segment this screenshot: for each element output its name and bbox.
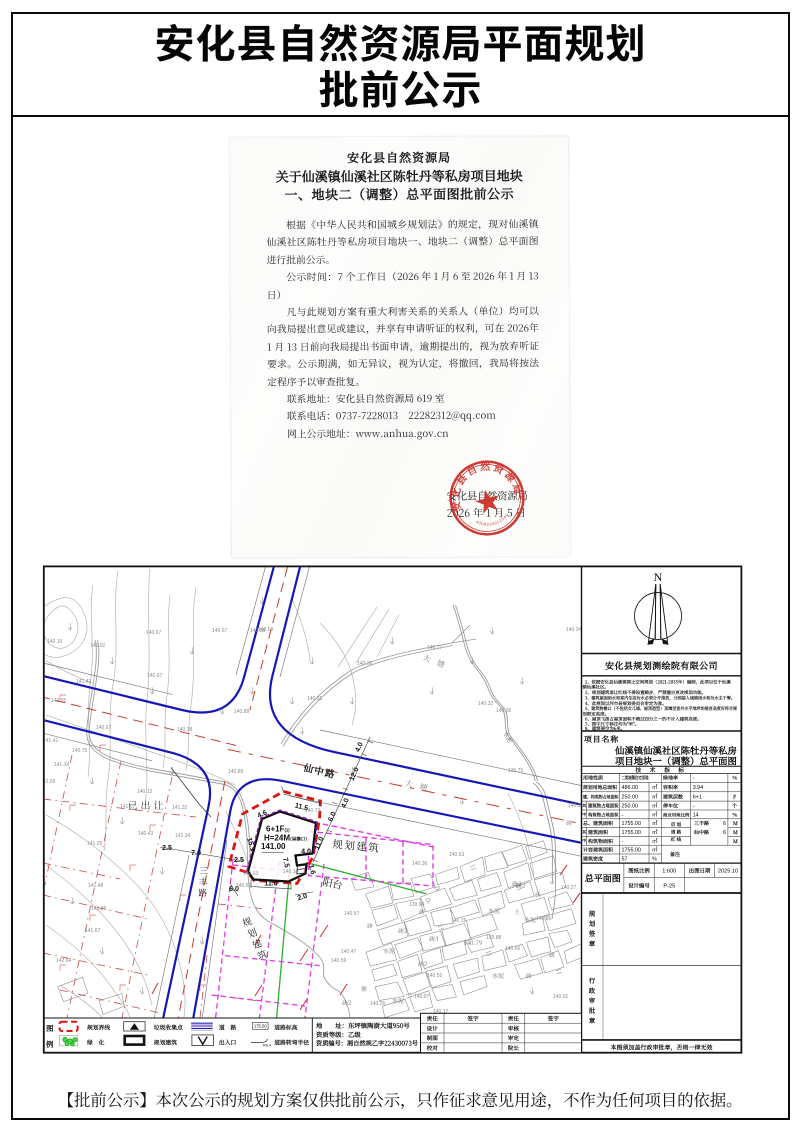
svg-text:141.41: 141.41 bbox=[43, 738, 59, 744]
svg-text:%: % bbox=[733, 775, 738, 782]
svg-text:绿地率: 绿地率 bbox=[662, 775, 678, 782]
svg-text:砖2: 砖2 bbox=[342, 998, 352, 1007]
svg-text:141.32: 141.32 bbox=[172, 805, 188, 811]
svg-text:P-25: P-25 bbox=[663, 883, 675, 889]
svg-text:构筑物面积: 构筑物面积 bbox=[587, 838, 614, 845]
svg-text:划: 划 bbox=[588, 919, 596, 928]
svg-text:-: - bbox=[622, 839, 624, 845]
svg-text:责任: 责任 bbox=[508, 1015, 520, 1023]
svg-text:1.6: 1.6 bbox=[307, 864, 317, 876]
svg-text:140.63: 140.63 bbox=[449, 852, 465, 858]
svg-text:砖: 砖 bbox=[566, 818, 572, 827]
svg-text:审: 审 bbox=[589, 996, 596, 1005]
svg-text:140.73: 140.73 bbox=[305, 808, 321, 814]
svg-text:砖: 砖 bbox=[535, 890, 541, 899]
svg-text:140.77: 140.77 bbox=[427, 645, 443, 651]
svg-text:规: 规 bbox=[588, 909, 596, 918]
svg-text:1:600: 1:600 bbox=[662, 868, 676, 874]
svg-text:140.57: 140.57 bbox=[344, 911, 360, 917]
svg-text:商业用地比例: 商业用地比例 bbox=[663, 812, 690, 818]
svg-text:责任: 责任 bbox=[427, 1015, 439, 1023]
svg-text:建筑层数: 建筑层数 bbox=[663, 793, 683, 800]
svg-text:批: 批 bbox=[588, 1006, 596, 1015]
svg-text:140.19: 140.19 bbox=[451, 918, 467, 924]
svg-text:140.36: 140.36 bbox=[357, 661, 373, 667]
svg-text:仙中路: 仙中路 bbox=[301, 760, 337, 782]
svg-text:建筑物占地面积: 建筑物占地面积 bbox=[588, 802, 619, 809]
svg-text:出图日期: 出图日期 bbox=[689, 866, 711, 874]
svg-text:安化县规划测绘院有限公司: 安化县规划测绘院有限公司 bbox=[605, 659, 718, 672]
svg-text:砖2: 砖2 bbox=[512, 879, 522, 888]
svg-text:486.00: 486.00 bbox=[622, 785, 639, 791]
svg-text:后 退: 后 退 bbox=[671, 822, 682, 828]
svg-text:砖3: 砖3 bbox=[429, 934, 438, 943]
svg-text:砖: 砖 bbox=[367, 921, 373, 930]
svg-text:资质编号：湘自然规乙字22430073号: 资质编号：湘自然规乙字22430073号 bbox=[316, 1039, 419, 1048]
svg-text:141.29: 141.29 bbox=[87, 841, 103, 847]
svg-text:6+1: 6+1 bbox=[693, 794, 702, 800]
svg-text:140.26: 140.26 bbox=[370, 1001, 386, 1007]
svg-text:红 线: 红 线 bbox=[671, 837, 682, 843]
svg-text:141.86: 141.86 bbox=[91, 906, 107, 912]
svg-text:本图须加盖行政审批章，否则一律无效: 本图须加盖行政审批章，否则一律无效 bbox=[610, 1043, 712, 1052]
svg-text:审定: 审定 bbox=[508, 1034, 520, 1042]
svg-text:141.07: 141.07 bbox=[120, 804, 136, 810]
svg-text:三丰路: 三丰路 bbox=[694, 820, 709, 827]
svg-text:140.10: 140.10 bbox=[283, 869, 299, 875]
svg-text:140.59: 140.59 bbox=[331, 958, 347, 964]
svg-text:1755.00: 1755.00 bbox=[622, 821, 642, 827]
svg-text:地 址：东坪镇陶澍大道950号: 地 址：东坪镇陶澍大道950号 bbox=[316, 1021, 410, 1030]
svg-text:绿 化: 绿 化 bbox=[86, 1037, 105, 1046]
svg-text:出入口: 出入口 bbox=[219, 1037, 237, 1046]
svg-text:阳台: 阳台 bbox=[321, 873, 344, 892]
svg-text:停车位: 停车位 bbox=[663, 802, 678, 809]
svg-text:6.0: 6.0 bbox=[326, 810, 337, 822]
svg-text:水泥: 水泥 bbox=[492, 971, 504, 980]
svg-text:建筑密度: 建筑密度 bbox=[583, 856, 603, 863]
svg-text:140.36: 140.36 bbox=[496, 708, 512, 714]
svg-text:3.94: 3.94 bbox=[693, 785, 704, 791]
svg-text:57: 57 bbox=[622, 857, 628, 863]
svg-text:140.16: 140.16 bbox=[47, 639, 63, 645]
svg-text:㎡: ㎡ bbox=[652, 846, 658, 854]
svg-text:㎡: ㎡ bbox=[652, 801, 658, 809]
svg-text:规划建筑: 规划建筑 bbox=[332, 837, 381, 856]
svg-text:容积率: 容积率 bbox=[663, 784, 678, 791]
svg-text:140.61: 140.61 bbox=[553, 994, 569, 1000]
svg-text:行: 行 bbox=[588, 976, 596, 985]
svg-text:7.0: 7.0 bbox=[191, 849, 201, 857]
svg-text:140.62: 140.62 bbox=[236, 883, 252, 889]
svg-text:140.43: 140.43 bbox=[138, 831, 154, 837]
svg-text:-: - bbox=[693, 775, 695, 782]
svg-text:2025.10: 2025.10 bbox=[718, 868, 738, 874]
svg-text:㎡: ㎡ bbox=[652, 792, 658, 800]
svg-text:设计编号: 设计编号 bbox=[628, 881, 650, 889]
svg-text:140.32: 140.32 bbox=[478, 701, 494, 707]
svg-text:签字: 签字 bbox=[466, 1015, 479, 1023]
svg-text:总平面图: 总平面图 bbox=[585, 872, 621, 885]
svg-text:图: 图 bbox=[46, 1023, 54, 1034]
svg-text:二类城镇住宅用地: 二类城镇住宅用地 bbox=[622, 775, 649, 782]
svg-text:㎡: ㎡ bbox=[652, 810, 658, 818]
svg-text:例: 例 bbox=[46, 1039, 54, 1050]
svg-text:141.67: 141.67 bbox=[85, 928, 101, 934]
svg-text:资质等级：乙级: 资质等级：乙级 bbox=[316, 1030, 361, 1039]
svg-text:院长: 院长 bbox=[508, 1044, 520, 1052]
svg-text:135.75: 135.75 bbox=[508, 768, 524, 774]
svg-text:道路转弯半径: 道路转弯半径 bbox=[274, 1037, 309, 1046]
svg-text:签字: 签字 bbox=[547, 1015, 560, 1023]
svg-text:技 术 指 标: 技 术 指 标 bbox=[634, 765, 687, 774]
svg-text:M: M bbox=[733, 820, 738, 827]
svg-text:14: 14 bbox=[693, 812, 699, 818]
svg-text:-: - bbox=[693, 802, 695, 809]
svg-text:M: M bbox=[733, 829, 738, 836]
svg-text:审核: 审核 bbox=[508, 1024, 520, 1032]
svg-text:6: 6 bbox=[723, 830, 726, 836]
svg-text:总、建筑面积: 总、建筑面积 bbox=[583, 820, 614, 827]
svg-text:12.0: 12.0 bbox=[348, 766, 361, 782]
svg-text:1755.00: 1755.00 bbox=[622, 848, 642, 854]
svg-text:仙中路: 仙中路 bbox=[693, 829, 709, 836]
svg-text:4.0: 4.0 bbox=[339, 797, 350, 809]
svg-text:140.12: 140.12 bbox=[137, 789, 153, 795]
svg-text:142.03: 142.03 bbox=[40, 779, 56, 785]
svg-text:140.67: 140.67 bbox=[212, 628, 228, 634]
svg-text:砖: 砖 bbox=[549, 950, 555, 959]
svg-text:141.34: 141.34 bbox=[175, 833, 191, 839]
svg-text:140.89: 140.89 bbox=[234, 709, 250, 715]
svg-text:道 路: 道 路 bbox=[219, 1022, 237, 1031]
svg-text:㎡: ㎡ bbox=[652, 819, 658, 827]
svg-text:140.63: 140.63 bbox=[243, 871, 259, 877]
svg-text:空: 空 bbox=[425, 896, 431, 905]
svg-text:140.31: 140.31 bbox=[307, 696, 323, 702]
svg-text:-: - bbox=[622, 812, 624, 818]
svg-text:项目名称: 项目名称 bbox=[584, 734, 619, 745]
svg-text:M: M bbox=[733, 838, 738, 845]
svg-text:水泥: 水泥 bbox=[392, 996, 404, 1005]
svg-text:2.5: 2.5 bbox=[234, 856, 244, 864]
svg-text:%: % bbox=[652, 857, 657, 863]
svg-text:建筑面积: 建筑面积 bbox=[588, 829, 609, 836]
svg-text:计容建筑面积: 计容建筑面积 bbox=[583, 847, 614, 854]
svg-text:章: 章 bbox=[589, 939, 596, 948]
svg-text:规划建筑: 规划建筑 bbox=[153, 1037, 177, 1046]
svg-text:中: 中 bbox=[582, 812, 586, 818]
svg-text:设计: 设计 bbox=[427, 1024, 439, 1032]
svg-text:规划界线: 规划界线 bbox=[86, 1022, 110, 1031]
svg-text:政: 政 bbox=[588, 986, 596, 995]
svg-text:140.86: 140.86 bbox=[536, 916, 552, 922]
svg-text:140.89: 140.89 bbox=[228, 769, 244, 775]
svg-text:140.47: 140.47 bbox=[341, 949, 357, 955]
svg-text:139.88: 139.88 bbox=[486, 935, 502, 941]
svg-text:备注: 备注 bbox=[670, 851, 680, 858]
svg-text:141.43: 141.43 bbox=[76, 679, 92, 685]
svg-text:140.67: 140.67 bbox=[147, 673, 163, 679]
svg-text:141.00: 141.00 bbox=[261, 842, 286, 851]
svg-text:制图: 制图 bbox=[427, 1034, 439, 1042]
svg-text:规划用地总面积: 规划用地总面积 bbox=[582, 784, 618, 791]
svg-text:140.53: 140.53 bbox=[258, 627, 274, 633]
svg-text:%: % bbox=[733, 811, 738, 818]
svg-text:140.75: 140.75 bbox=[72, 748, 88, 754]
svg-text:砖: 砖 bbox=[419, 907, 425, 916]
svg-text:1755.00: 1755.00 bbox=[622, 830, 642, 836]
svg-text:F: F bbox=[733, 793, 737, 800]
svg-text:㎡: ㎡ bbox=[652, 783, 658, 791]
svg-text:签: 签 bbox=[588, 929, 596, 938]
svg-text:140.55: 140.55 bbox=[427, 973, 443, 979]
svg-text:6: 6 bbox=[723, 821, 726, 827]
svg-text:图纸比例: 图纸比例 bbox=[628, 866, 650, 874]
svg-text:N: N bbox=[654, 570, 663, 584]
svg-text:㎡: ㎡ bbox=[652, 837, 658, 845]
svg-text:砖2: 砖2 bbox=[398, 926, 408, 935]
svg-text:校对: 校对 bbox=[426, 1044, 439, 1052]
svg-text:8、建筑架空为6米。: 8、建筑架空为6米。 bbox=[585, 726, 625, 732]
svg-text:空: 空 bbox=[434, 884, 440, 893]
svg-text:250.00: 250.00 bbox=[622, 803, 639, 809]
svg-text:141.34: 141.34 bbox=[54, 762, 70, 768]
svg-text:水泥: 水泥 bbox=[488, 906, 500, 915]
svg-text:水泥: 水泥 bbox=[383, 946, 395, 955]
svg-text:大塘: 大塘 bbox=[404, 778, 436, 795]
svg-text:140.97: 140.97 bbox=[414, 994, 430, 1000]
svg-text:道 路: 道 路 bbox=[671, 829, 682, 835]
svg-text:140.36: 140.36 bbox=[412, 861, 428, 867]
svg-text:2.5: 2.5 bbox=[162, 844, 172, 852]
svg-text:用地性质: 用地性质 bbox=[583, 775, 603, 782]
svg-text:140.38: 140.38 bbox=[177, 727, 193, 733]
svg-text:140.79: 140.79 bbox=[464, 938, 483, 947]
svg-text:141.48: 141.48 bbox=[88, 883, 104, 889]
svg-text:大塘: 大塘 bbox=[421, 652, 453, 673]
svg-text:构筑物占地面积: 构筑物占地面积 bbox=[587, 811, 619, 818]
svg-text:土: 土 bbox=[514, 907, 520, 916]
svg-text:140.66: 140.66 bbox=[505, 946, 521, 952]
svg-text:建、构筑物占地面积: 建、构筑物占地面积 bbox=[582, 794, 619, 800]
svg-text:140.67: 140.67 bbox=[96, 725, 112, 731]
svg-text:个: 个 bbox=[732, 802, 737, 809]
svg-text:141.02: 141.02 bbox=[90, 643, 106, 649]
svg-text:R6.4: R6.4 bbox=[263, 1044, 271, 1048]
svg-text:水泥: 水泥 bbox=[524, 915, 536, 924]
svg-text:4309230012345: 4309230012345 bbox=[474, 511, 511, 530]
svg-text:砖: 砖 bbox=[526, 971, 532, 980]
svg-text:15.1: 15.1 bbox=[245, 837, 257, 853]
svg-text:㎡: ㎡ bbox=[652, 828, 658, 836]
svg-text:垃圾收集点: 垃圾收集点 bbox=[154, 1022, 183, 1031]
svg-text:175.50: 175.50 bbox=[254, 1024, 267, 1029]
svg-text:140.27: 140.27 bbox=[561, 885, 577, 891]
svg-text:140.34: 140.34 bbox=[566, 627, 582, 633]
svg-text:142.64: 142.64 bbox=[56, 958, 72, 964]
svg-text:中: 中 bbox=[582, 838, 586, 844]
svg-text:140.67: 140.67 bbox=[146, 630, 162, 636]
svg-text:11.0: 11.0 bbox=[264, 880, 277, 888]
svg-text:道路标高: 道路标高 bbox=[274, 1022, 297, 1031]
svg-text:路: 路 bbox=[198, 886, 207, 899]
svg-text:章: 章 bbox=[589, 1016, 596, 1025]
svg-text:塘: 塘 bbox=[361, 984, 367, 993]
svg-text:4.0: 4.0 bbox=[301, 848, 311, 856]
svg-text:砖2: 砖2 bbox=[418, 959, 428, 968]
svg-text:250.00: 250.00 bbox=[622, 794, 639, 800]
svg-text:142.05: 142.05 bbox=[51, 698, 67, 704]
